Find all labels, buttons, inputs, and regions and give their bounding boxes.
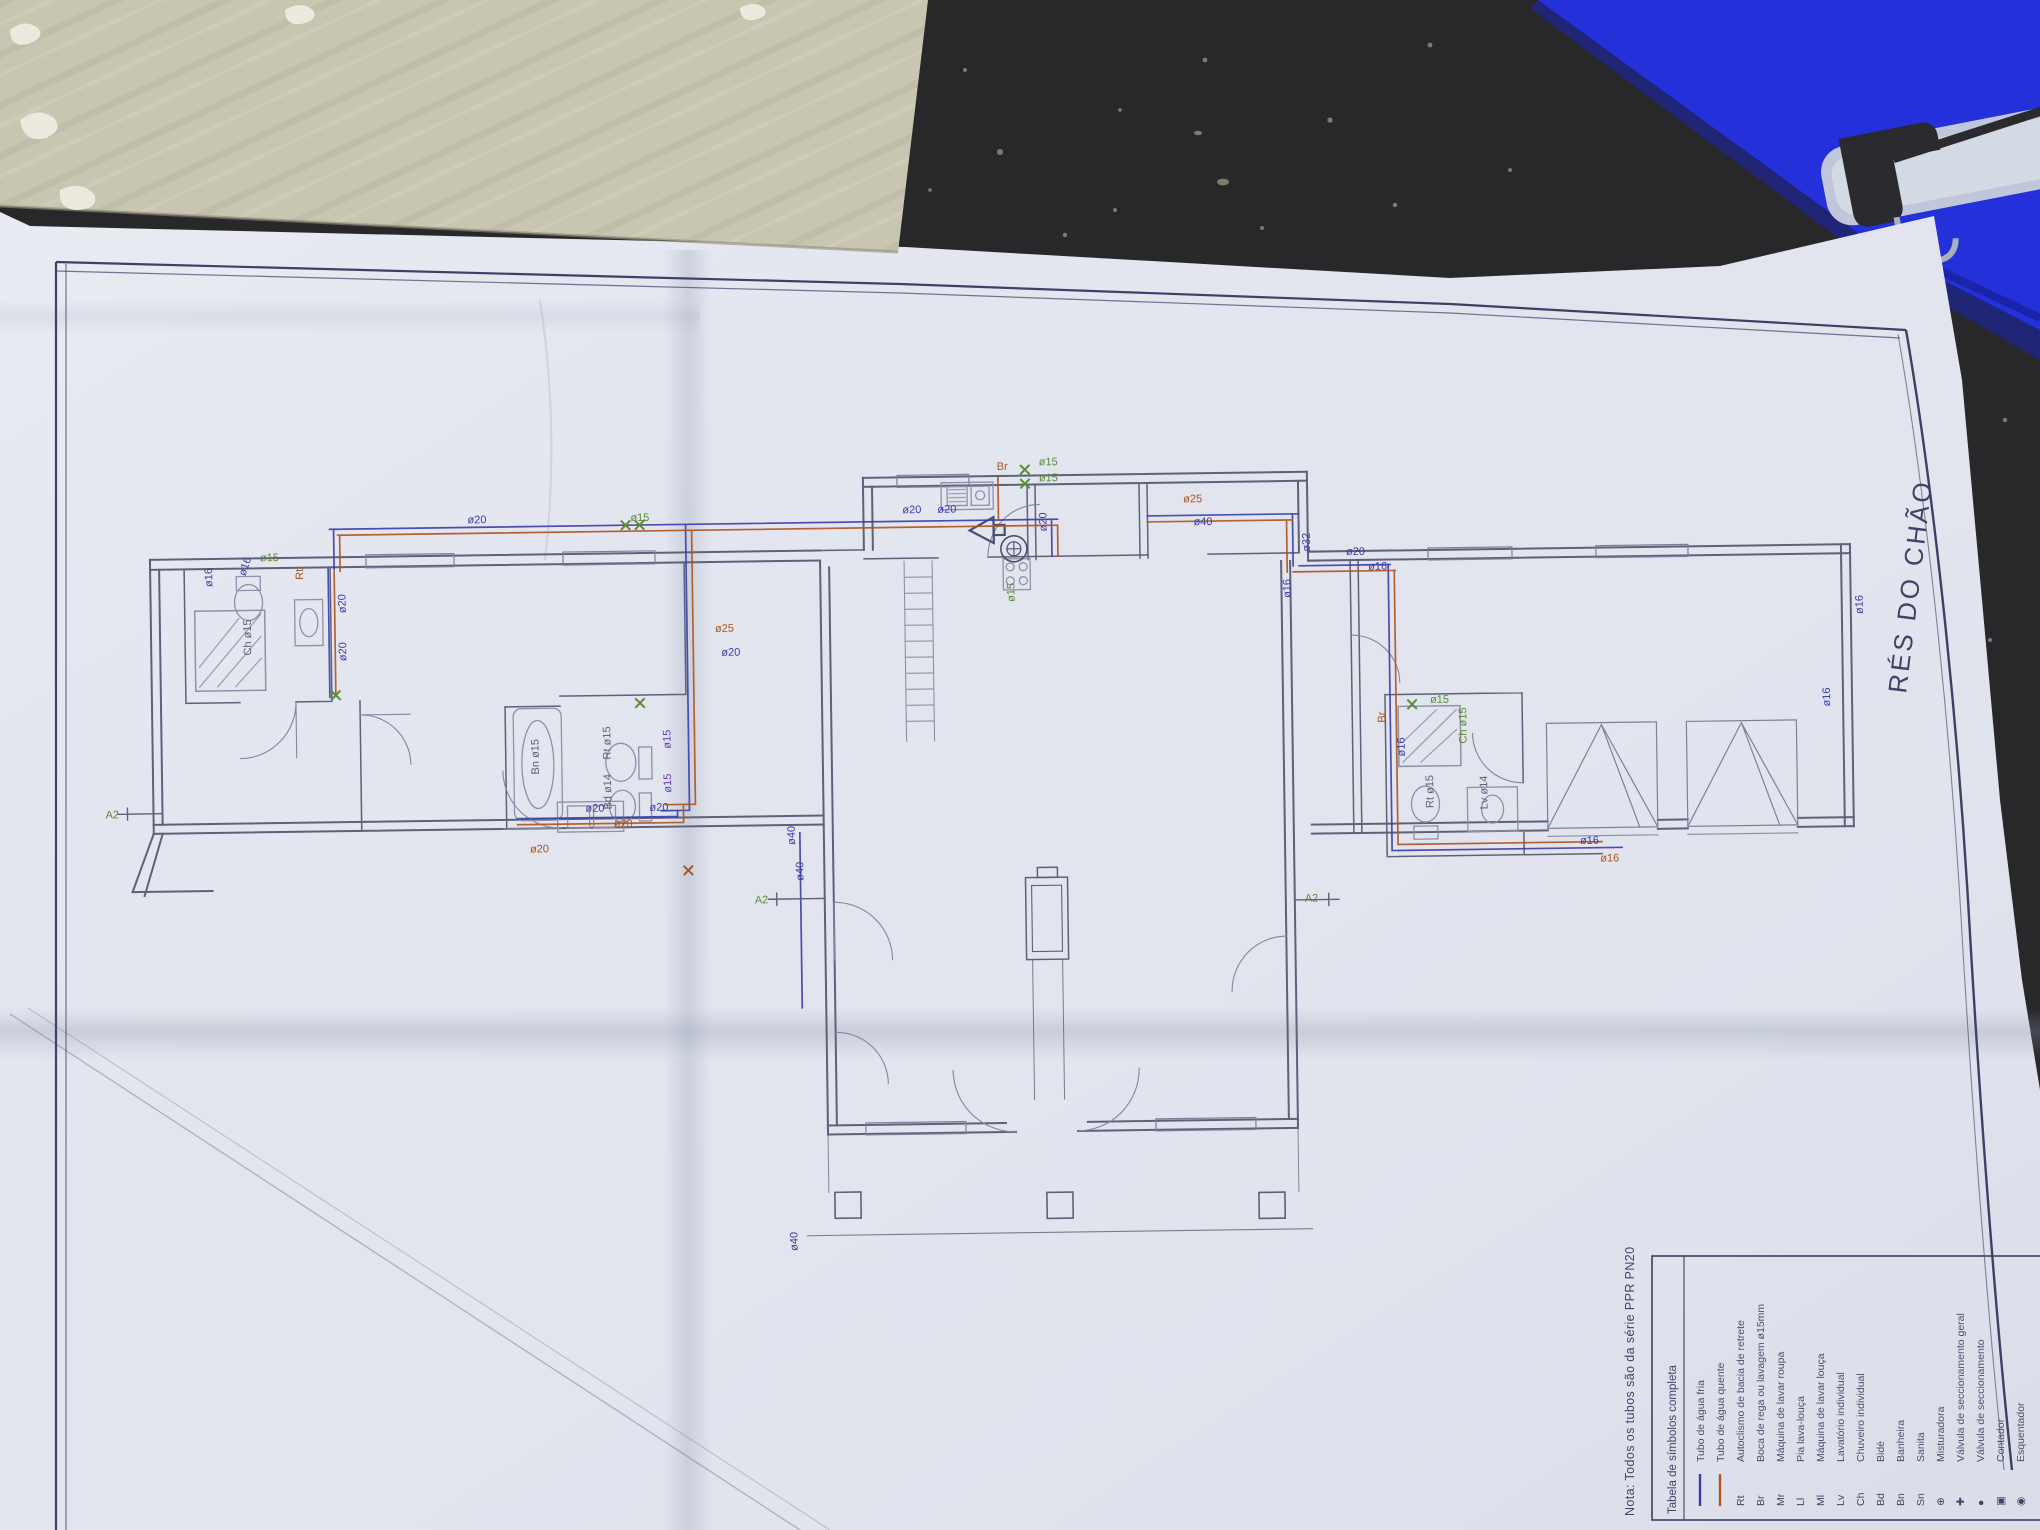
pipe-label: ø15 — [260, 552, 279, 564]
pipe-label: ø16 — [1368, 561, 1387, 573]
legend-label: Misturadora — [1935, 1406, 1947, 1462]
pipe-label: ø20 — [649, 802, 668, 814]
legend-abbrev: ▣ — [1995, 1496, 2007, 1506]
legend-abbrev: Lv — [1835, 1494, 1847, 1506]
legend-abbrev: Sn — [1915, 1493, 1927, 1506]
legend-abbrev: Mr — [1775, 1493, 1787, 1506]
pipe-label: A2 — [755, 894, 769, 906]
pipe-label: ø15 — [1039, 472, 1058, 484]
note-text: Nota: Todos os tubos são da série PPR PN… — [1623, 1247, 1637, 1517]
pipe-label: ø20 — [337, 642, 349, 661]
legend-abbrev: ● — [1975, 1500, 1987, 1506]
legend-abbrev: Bn — [1895, 1493, 1907, 1506]
cardboard — [0, 0, 928, 252]
pipe-label: ø15 — [1005, 583, 1017, 602]
pipe-label: ø25 — [715, 623, 734, 635]
pipe-label: Ch ø15 — [1457, 707, 1470, 743]
pipe-label: ø16 — [1281, 579, 1293, 598]
pipe-label: ø20 — [937, 504, 956, 516]
legend-abbrev: Ch — [1855, 1492, 1867, 1506]
pipe-label: Rt — [294, 569, 306, 580]
pipe-label: ø25 — [1183, 493, 1202, 505]
pipe-label: Br — [997, 461, 1009, 473]
pipe-label: Bd ø14 — [602, 774, 614, 810]
legend-abbrev: ◉ — [2015, 1497, 2027, 1506]
legend-abbrev: ✚ — [1955, 1497, 1967, 1506]
pipe-label: ø20 — [721, 647, 740, 659]
pipe-label: ø20 — [336, 594, 348, 613]
legend-label: Lavatório individual — [1835, 1372, 1847, 1462]
pipe-label: ø16 — [1580, 835, 1599, 847]
legend-label: Boca de rega ou lavagem ø15mm — [1755, 1304, 1767, 1462]
legend-label: Máquina de lavar louça — [1815, 1353, 1827, 1462]
pipe-label: ø20 — [530, 843, 549, 855]
legend-label: Tubo de água quente — [1715, 1362, 1727, 1462]
pipe-label: ø32 — [1301, 533, 1313, 552]
legend-label: Sanita — [1915, 1432, 1927, 1462]
pipe-label: ø15 — [1430, 694, 1449, 706]
pipe-label: ø40 — [788, 1232, 800, 1251]
pipe-label: ø20 — [467, 514, 486, 526]
pipe-label: Ch ø15 — [242, 619, 255, 655]
photo-of-blueprint: ø16ø16Rtø15ø20ø20Ch ø15ø20ø15ø25ø20ø20ø2… — [0, 0, 2040, 1530]
pipe-label: ø16 — [1396, 737, 1408, 756]
legend-label: Máquina de lavar roupa — [1775, 1352, 1787, 1462]
pipe-label: ø40 — [786, 826, 798, 845]
blueprint-paper: ø16ø16Rtø15ø20ø20Ch ø15ø20ø15ø25ø20ø20ø2… — [0, 212, 2040, 1530]
pipe-label: ø15 — [662, 774, 674, 793]
pipe-label: ø16 — [203, 568, 215, 587]
legend-title: Tabela de símbolos completa — [1667, 1364, 1679, 1514]
pipe-label: ø40 — [1193, 516, 1212, 528]
legend-abbrev: Br — [1755, 1495, 1767, 1506]
legend-label: Válvula de seccionamento — [1975, 1339, 1987, 1462]
pipe-label: ø16 — [1821, 687, 1833, 706]
pipe-label: Br — [1376, 711, 1388, 723]
legend-label: Autoclismo de bacia de retrete — [1735, 1320, 1747, 1462]
pipe-label: Bn ø15 — [530, 739, 542, 775]
pipe-label: ø16 — [1600, 852, 1619, 864]
legend-label: Bidé — [1875, 1441, 1887, 1462]
legend-label: Válvula de seccionamento geral — [1955, 1313, 1967, 1462]
legend-abbrev: Bd — [1875, 1493, 1887, 1506]
pipe-label: A2 — [105, 809, 119, 821]
legend-label: Pia lava-louça — [1795, 1396, 1807, 1462]
pipe-label: ø20 — [1346, 546, 1365, 558]
pipe-label: Rt ø15 — [601, 726, 613, 759]
legend-label: Esquentador — [2015, 1402, 2027, 1462]
pipe-label: ø15 — [630, 512, 649, 524]
legend-label: Contador — [1995, 1418, 2007, 1462]
legend-abbrev: Ml — [1815, 1495, 1827, 1506]
legend-abbrev: Rt — [1735, 1495, 1747, 1506]
legend-abbrev: ⊕ — [1935, 1497, 1947, 1506]
pipe-label: Rt ø15 — [1424, 775, 1436, 808]
vertical-fold-crease — [664, 250, 712, 1530]
legend-label: Banheira — [1895, 1420, 1907, 1462]
legend-label: Chuveiro individual — [1855, 1373, 1867, 1462]
pipe-label: ø20 — [902, 504, 921, 516]
legend-label: Tubo de água fria — [1695, 1380, 1707, 1462]
pipe-label: A2 — [1305, 893, 1319, 905]
pipe-label: ø15 — [661, 730, 673, 749]
pipe-label: ø20 — [614, 818, 633, 830]
horizontal-fold-crease — [0, 1008, 2040, 1060]
legend-abbrev: Ll — [1795, 1498, 1807, 1506]
pipe-label: Lv ø14 — [1478, 776, 1490, 810]
pipe-label: ø16 — [1854, 595, 1866, 614]
pipe-label: ø40 — [794, 862, 806, 881]
pipe-label: ø15 — [1039, 456, 1058, 468]
pipe-label: ø20 — [1037, 512, 1049, 531]
